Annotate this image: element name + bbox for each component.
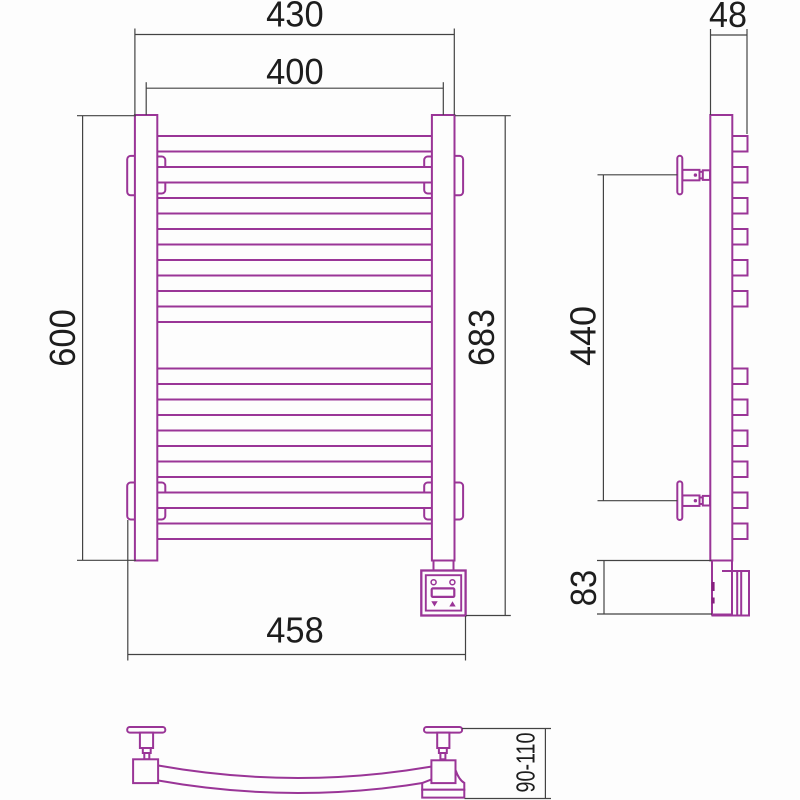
- svg-text:430: 430: [266, 0, 324, 35]
- svg-text:83: 83: [563, 570, 604, 607]
- svg-text:400: 400: [266, 51, 324, 92]
- svg-text:90-110: 90-110: [510, 733, 540, 793]
- svg-text:600: 600: [42, 309, 83, 367]
- svg-text:48: 48: [709, 0, 747, 35]
- svg-text:440: 440: [563, 306, 604, 366]
- svg-text:458: 458: [266, 610, 324, 651]
- svg-text:683: 683: [461, 309, 502, 366]
